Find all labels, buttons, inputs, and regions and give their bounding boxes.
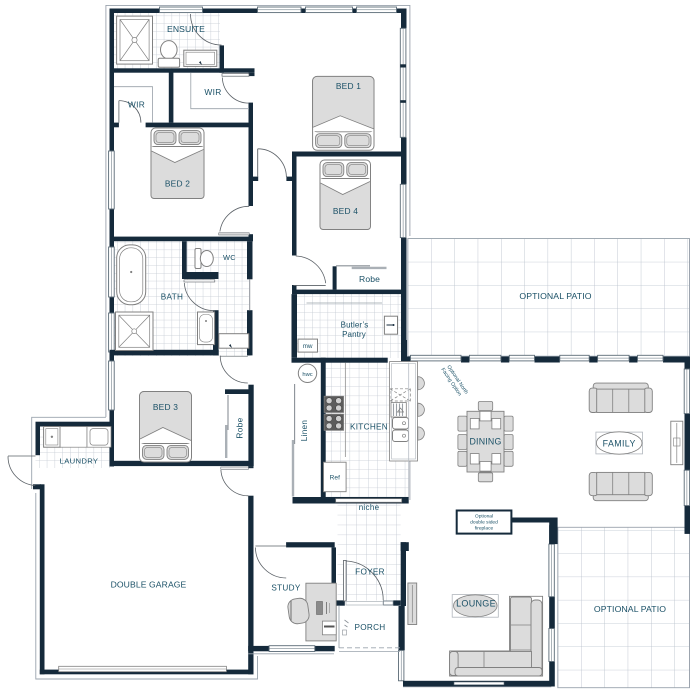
svg-text:STUDY: STUDY [271, 584, 300, 593]
svg-text:ENSUITE: ENSUITE [167, 24, 205, 34]
svg-text:Robe: Robe [359, 274, 380, 284]
svg-text:Pantry: Pantry [342, 330, 366, 339]
svg-text:DINING: DINING [470, 436, 502, 446]
svg-text:WIR: WIR [204, 87, 221, 97]
svg-text:BED 2: BED 2 [165, 178, 190, 188]
svg-text:OPTIONAL PATIO: OPTIONAL PATIO [519, 291, 591, 301]
svg-text:Optional: Optional [475, 513, 493, 519]
svg-text:mw: mw [303, 343, 313, 350]
svg-text:BED 1: BED 1 [336, 81, 361, 91]
svg-text:Linen: Linen [300, 420, 309, 442]
svg-text:LAUNDRY: LAUNDRY [60, 456, 99, 465]
svg-text:niche: niche [359, 503, 380, 512]
svg-text:FOYER: FOYER [355, 568, 385, 577]
svg-text:double sided: double sided [470, 519, 498, 525]
svg-text:WC: WC [223, 253, 236, 262]
svg-text:KITCHEN: KITCHEN [350, 422, 388, 431]
svg-text:OPTIONAL PATIO: OPTIONAL PATIO [594, 604, 666, 614]
svg-text:PORCH: PORCH [354, 623, 385, 632]
svg-text:Butler’s: Butler’s [341, 321, 369, 330]
svg-text:BED 4: BED 4 [333, 206, 358, 216]
svg-text:DOUBLE GARAGE: DOUBLE GARAGE [111, 579, 187, 589]
svg-text:FAMILY: FAMILY [603, 438, 636, 448]
svg-text:hwc: hwc [302, 372, 312, 378]
svg-text:WIR: WIR [128, 100, 145, 110]
svg-text:LOUNGE: LOUNGE [456, 598, 496, 608]
svg-text:BED 3: BED 3 [153, 402, 178, 412]
svg-text:BATH: BATH [161, 293, 183, 302]
svg-text:fireplace: fireplace [475, 525, 494, 531]
svg-text:Robe: Robe [235, 417, 245, 438]
svg-text:Ref: Ref [330, 474, 341, 481]
